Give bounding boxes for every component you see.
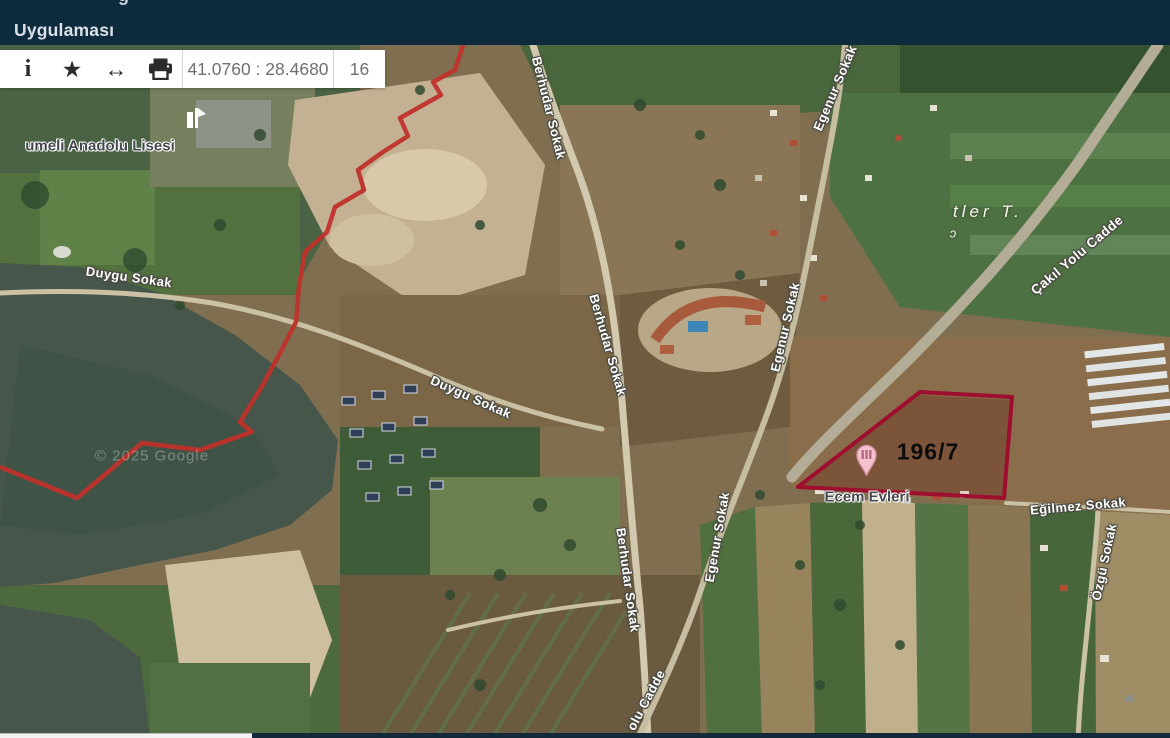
double-arrow-icon: ↔ xyxy=(105,58,128,81)
label-stray-glyph: ɔ xyxy=(950,226,961,241)
satellite-imagery xyxy=(0,45,1170,738)
label-school: umeli Anadolu Lisesi xyxy=(25,138,174,155)
info-button[interactable]: i xyxy=(6,50,50,88)
map-viewport[interactable] xyxy=(0,45,1170,738)
print-button[interactable] xyxy=(138,50,182,88)
footer-bar xyxy=(252,733,1170,738)
label-area-partial: tler T. xyxy=(953,202,1023,222)
coordinates-display: 41.0760 : 28.4680 xyxy=(183,59,333,80)
field-strips xyxy=(700,500,1170,738)
resort-buildings xyxy=(638,288,782,372)
extent-button[interactable]: ↔ xyxy=(94,50,138,88)
star-icon: ★ xyxy=(62,58,83,81)
app-title: Uygulaması xyxy=(14,20,114,41)
footer-panel-light xyxy=(0,733,252,738)
google-watermark: © 2025 Google xyxy=(95,448,209,465)
clipped-title-line: ğ xyxy=(118,0,129,6)
label-ecem-evleri: Ecem Evleri xyxy=(824,489,909,506)
app-header: ğ Uygulaması xyxy=(0,0,1170,45)
map-toolbar: i ★ ↔ 41.0760 : 28.4680 16 xyxy=(0,50,385,88)
zoom-level-display: 16 xyxy=(334,59,385,80)
place-pin-icon[interactable] xyxy=(855,444,878,477)
info-icon: i xyxy=(25,57,32,81)
printer-icon xyxy=(148,58,173,80)
school-icon xyxy=(184,106,208,132)
favorite-button[interactable]: ★ xyxy=(50,50,94,88)
app-window: ğ Uygulaması xyxy=(0,0,1170,738)
parcel-number-label: 196/7 xyxy=(897,439,960,466)
